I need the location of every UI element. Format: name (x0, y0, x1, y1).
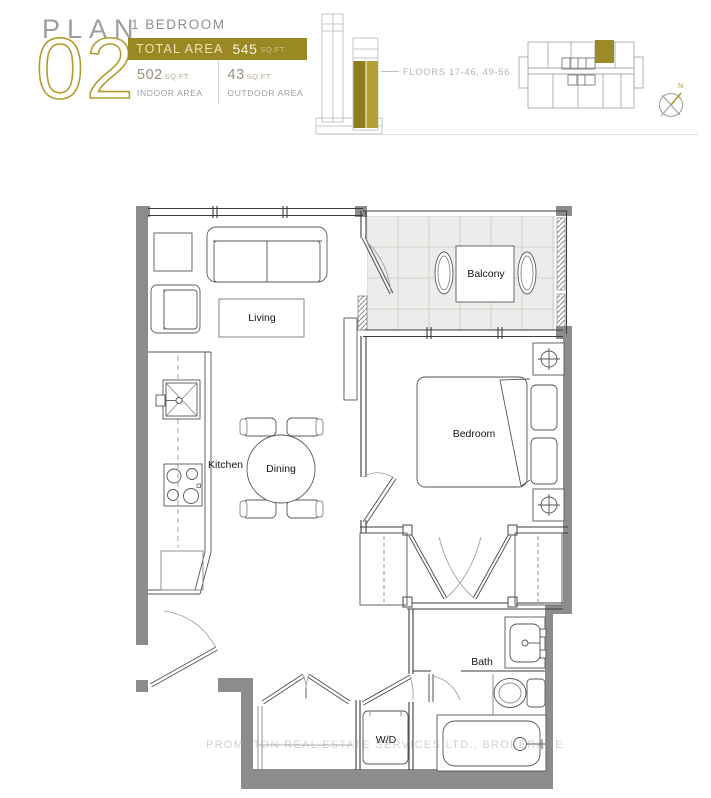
bath-label: Bath (471, 656, 493, 668)
armchair (151, 285, 200, 333)
watermark: PROMPTON REAL ESTATE SERVICES LTD., BROK… (206, 739, 564, 751)
key-plan-unit-highlight (595, 40, 614, 63)
nightstand-bottom (533, 489, 564, 521)
kitchen-sink (156, 380, 200, 419)
plan-drawing: FLOORS 17-46, 49-56 N (0, 0, 711, 798)
key-plan (519, 40, 643, 108)
living-furniture (151, 227, 327, 337)
compass-north-label: N (678, 83, 683, 90)
living-label: Living (248, 312, 276, 324)
dining-chair (287, 418, 320, 436)
dining-chair (287, 500, 320, 518)
bedroom-furniture (344, 318, 564, 521)
dining-chair (243, 500, 276, 518)
pillow (531, 385, 557, 430)
entry-door (150, 611, 218, 687)
bath-door (429, 674, 460, 702)
pillow (531, 438, 557, 484)
kitchen-label: Kitchen (208, 459, 243, 471)
tv-console (344, 318, 357, 400)
closets (360, 533, 562, 605)
bedroom-door (363, 473, 396, 524)
closet-right (515, 533, 562, 605)
laundry-closet-door (362, 675, 413, 705)
entry-closet-doors (262, 674, 350, 704)
closet-left (360, 533, 407, 605)
toilet (494, 679, 545, 708)
floor-plan: Living Dining Kitchen Bedroom Balcony Ba… (136, 206, 572, 789)
cooktop (164, 464, 202, 506)
closet-doors (403, 525, 517, 607)
elevator-core (562, 58, 595, 85)
nightstand-top (533, 343, 564, 375)
floors-callout: FLOORS 17-46, 49-56 (403, 67, 510, 78)
compass (660, 93, 683, 117)
dining-chair (243, 418, 276, 436)
balcony-label: Balcony (467, 268, 505, 280)
sofa (207, 227, 327, 282)
side-table (154, 233, 192, 271)
dining-label: Dining (266, 463, 296, 475)
floorplan-page: { "header": { "plan_label": "PLAN", "pla… (0, 0, 711, 798)
bedroom-label: Bedroom (453, 428, 496, 440)
vanity-sink (505, 617, 546, 668)
